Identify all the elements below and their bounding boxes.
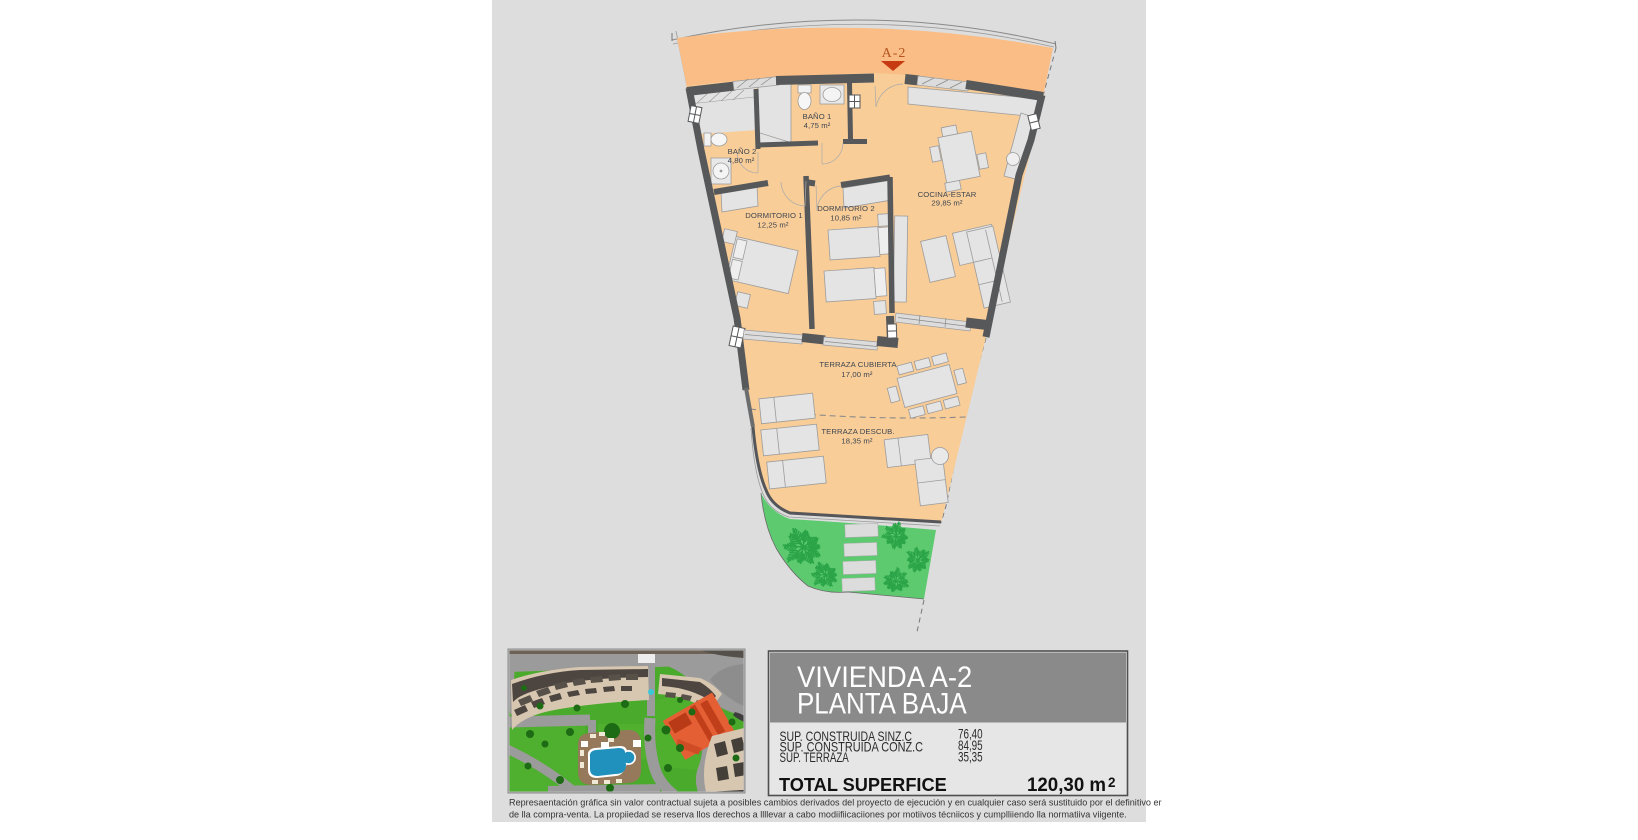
svg-text:12,25 m²: 12,25 m² [757, 221, 788, 230]
svg-text:120,30 m: 120,30 m [1027, 775, 1106, 796]
svg-text:4,80 m²: 4,80 m² [728, 156, 755, 165]
svg-text:A-2: A-2 [882, 46, 907, 61]
svg-text:4,75 m²: 4,75 m² [804, 121, 831, 130]
svg-text:BAÑO 2: BAÑO 2 [728, 147, 757, 156]
svg-text:2: 2 [1108, 775, 1116, 790]
svg-text:DORMITORIO 1: DORMITORIO 1 [745, 211, 802, 220]
svg-text:TERRAZA CUBIERTA: TERRAZA CUBIERTA [819, 360, 897, 369]
svg-text:PLANTA BAJA: PLANTA BAJA [797, 687, 967, 720]
svg-text:TERRAZA DESCUB.: TERRAZA DESCUB. [821, 427, 894, 436]
svg-text:BAÑO 1: BAÑO 1 [803, 112, 832, 121]
svg-text:17,00 m²: 17,00 m² [841, 370, 872, 379]
svg-text:29,85 m²: 29,85 m² [931, 199, 962, 208]
svg-text:18,35 m²: 18,35 m² [841, 437, 872, 446]
svg-text:10,85 m²: 10,85 m² [830, 214, 861, 223]
svg-text:35,35: 35,35 [958, 749, 983, 765]
svg-text:de lla compra-venta. La propii: de lla compra-venta. La propiiedad se re… [509, 810, 1127, 820]
svg-text:DORMITORIO 2: DORMITORIO 2 [817, 204, 874, 213]
svg-text:Represaentación gráfica sin va: Represaentación gráfica sin valor contra… [509, 798, 1162, 808]
svg-text:SUP. TERRAZA: SUP. TERRAZA [780, 751, 849, 766]
svg-text:TOTAL SUPERFICE: TOTAL SUPERFICE [779, 775, 947, 795]
